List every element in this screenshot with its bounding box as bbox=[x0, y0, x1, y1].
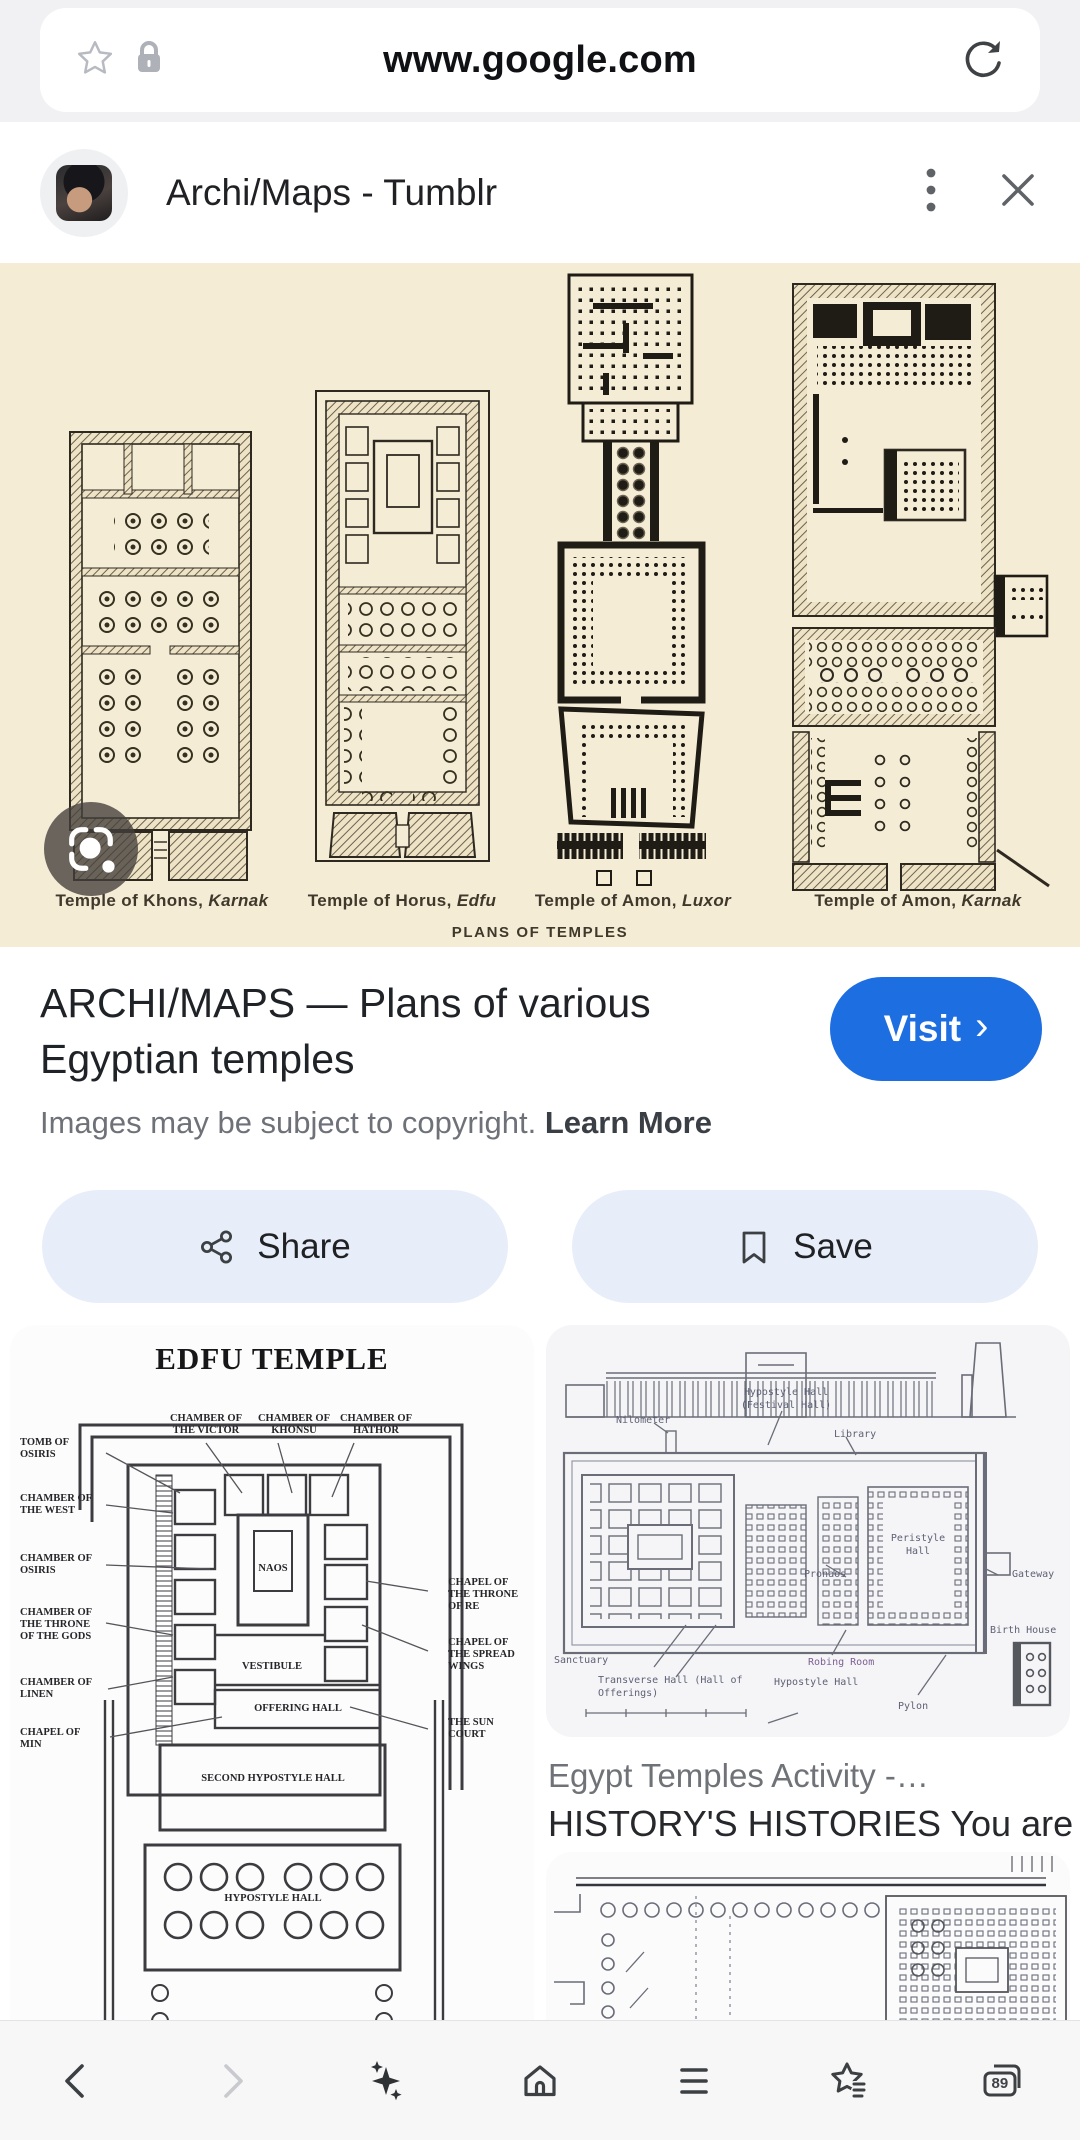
related-card-partial-plan[interactable] bbox=[546, 1852, 1070, 2020]
avatar[interactable] bbox=[40, 149, 128, 237]
plan-label: CHAPEL OF THE THRONE OF RE bbox=[448, 1577, 530, 1612]
plan-label: CHAMBER OF THE VICTOR bbox=[160, 1413, 252, 1437]
star-list-icon bbox=[826, 2058, 872, 2104]
back-icon bbox=[54, 2058, 100, 2104]
share-icon bbox=[199, 1229, 235, 1265]
refresh-icon[interactable] bbox=[960, 35, 1006, 86]
copyright-note: Images may be subject to copyright. Lear… bbox=[40, 1105, 712, 1141]
plan-label: Nilometer bbox=[616, 1415, 670, 1428]
plan-label: CHAMBER OF HATHOR bbox=[334, 1413, 418, 1437]
learn-more-link[interactable]: Learn More bbox=[545, 1105, 712, 1140]
plan-label: CHAMBER OF THE WEST bbox=[20, 1493, 104, 1517]
chevron-right-icon: › bbox=[975, 1004, 988, 1049]
plan-label: Transverse Hall (Hall of Offerings) bbox=[598, 1675, 788, 1700]
hero-caption-3: Temple of Amon, Luxor bbox=[535, 891, 731, 911]
plan-label: Gateway bbox=[1012, 1569, 1054, 1582]
related-caption-source[interactable]: HISTORY'S HISTORIES You are… bbox=[548, 1803, 1072, 1845]
plan-label: Peristyle Hall bbox=[883, 1533, 953, 1558]
plan-label: CHAMBER OF KHONSU bbox=[252, 1413, 336, 1437]
back-button[interactable] bbox=[0, 2058, 154, 2104]
url-bar[interactable]: www.google.com bbox=[40, 8, 1040, 112]
viewer-title: Archi/Maps - Tumblr bbox=[166, 172, 924, 214]
plan-label: CHAPEL OF THE SPREAD WINGS bbox=[448, 1637, 530, 1672]
share-button[interactable]: Share bbox=[42, 1190, 508, 1303]
plan-label: OFFERING HALL bbox=[254, 1703, 342, 1715]
plan-label: Sanctuary bbox=[554, 1655, 608, 1668]
plan-label: CHAPEL OF MIN bbox=[20, 1727, 100, 1751]
result-info: ARCHI/MAPS — Plans of various Egyptian t… bbox=[0, 947, 1080, 1190]
url-text[interactable]: www.google.com bbox=[224, 39, 856, 82]
bookmark-icon bbox=[737, 1229, 771, 1265]
plan-label: CHAMBER OF OSIRIS bbox=[20, 1553, 100, 1577]
plan-label: HYPOSTYLE HALL bbox=[198, 1893, 348, 1905]
plan-label: NAOS bbox=[258, 1563, 287, 1575]
menu-button[interactable] bbox=[617, 2058, 771, 2104]
menu-icon bbox=[671, 2058, 717, 2104]
plan-label: Library bbox=[834, 1429, 876, 1442]
hero-caption-4: Temple of Amon, Karnak bbox=[814, 891, 1021, 911]
screen: www.google.com Archi/Maps - Tumblr bbox=[0, 0, 1080, 2140]
plan-label: Pylon bbox=[898, 1701, 928, 1714]
image-viewer-header: Archi/Maps - Tumblr bbox=[0, 122, 1080, 263]
plan-label: CHAMBER OF LINEN bbox=[20, 1677, 100, 1701]
plan-amon-luxor bbox=[553, 273, 710, 891]
related-card-edfu[interactable]: EDFU TEMPLE bbox=[10, 1325, 534, 2020]
plan-label: Robing Room bbox=[808, 1657, 874, 1670]
partial-plan-drawing bbox=[546, 1852, 1070, 2020]
plan-label: Pronaos bbox=[804, 1569, 846, 1582]
tabs-button[interactable]: 89 bbox=[926, 2058, 1080, 2104]
plan-label: TOMB OF OSIRIS bbox=[20, 1437, 100, 1461]
browser-bottom-nav: 89 bbox=[0, 2020, 1080, 2140]
bookmark-star-icon[interactable] bbox=[74, 37, 116, 84]
tab-count: 89 bbox=[985, 2073, 1015, 2095]
plan-label: SECOND HYPOSTYLE HALL bbox=[198, 1773, 348, 1785]
plan-label: CHAMBER OF THE THRONE OF THE GODS bbox=[20, 1607, 104, 1642]
plan-label: Hypostyle Hall (Festival Hall) bbox=[721, 1387, 851, 1412]
related-caption-title[interactable]: Egypt Temples Activity -… bbox=[548, 1757, 1072, 1795]
save-button[interactable]: Save bbox=[572, 1190, 1038, 1303]
bookmarks-button[interactable] bbox=[771, 2058, 925, 2104]
forward-icon bbox=[208, 2058, 254, 2104]
related-results: EDFU TEMPLE bbox=[0, 1325, 1080, 2020]
result-title: ARCHI/MAPS — Plans of various Egyptian t… bbox=[40, 975, 800, 1087]
ai-assistant-button[interactable] bbox=[309, 2058, 463, 2104]
avatar-photo bbox=[56, 165, 112, 221]
close-icon[interactable] bbox=[996, 168, 1040, 217]
plan-amon-karnak bbox=[785, 280, 1051, 894]
related-card-egypt-activity[interactable]: Nilometer Hypostyle Hall (Festival Hall)… bbox=[546, 1325, 1070, 1737]
plan-label: Hypostyle Hall bbox=[774, 1677, 858, 1690]
hero-caption-footer: PLANS OF TEMPLES bbox=[0, 924, 1080, 941]
lens-icon bbox=[63, 821, 119, 877]
sparkles-icon bbox=[363, 2058, 409, 2104]
plan-label: VESTIBULE bbox=[242, 1661, 302, 1673]
hero-image[interactable]: Temple of Khons, Karnak Temple of Horus,… bbox=[0, 263, 1080, 947]
lock-icon bbox=[134, 40, 164, 81]
google-lens-button[interactable] bbox=[44, 802, 138, 896]
plan-horus-edfu bbox=[314, 389, 491, 887]
kebab-menu-icon[interactable] bbox=[924, 165, 938, 220]
plan-label: Birth House bbox=[990, 1625, 1056, 1638]
forward-button[interactable] bbox=[154, 2058, 308, 2104]
browser-topbar: www.google.com bbox=[0, 0, 1080, 122]
plan-label: THE SUN COURT bbox=[448, 1717, 530, 1741]
action-row: Share Save bbox=[0, 1190, 1080, 1305]
hero-caption-2: Temple of Horus, Edfu bbox=[308, 891, 497, 911]
visit-button[interactable]: Visit› bbox=[830, 977, 1042, 1081]
home-icon bbox=[517, 2058, 563, 2104]
home-button[interactable] bbox=[463, 2058, 617, 2104]
